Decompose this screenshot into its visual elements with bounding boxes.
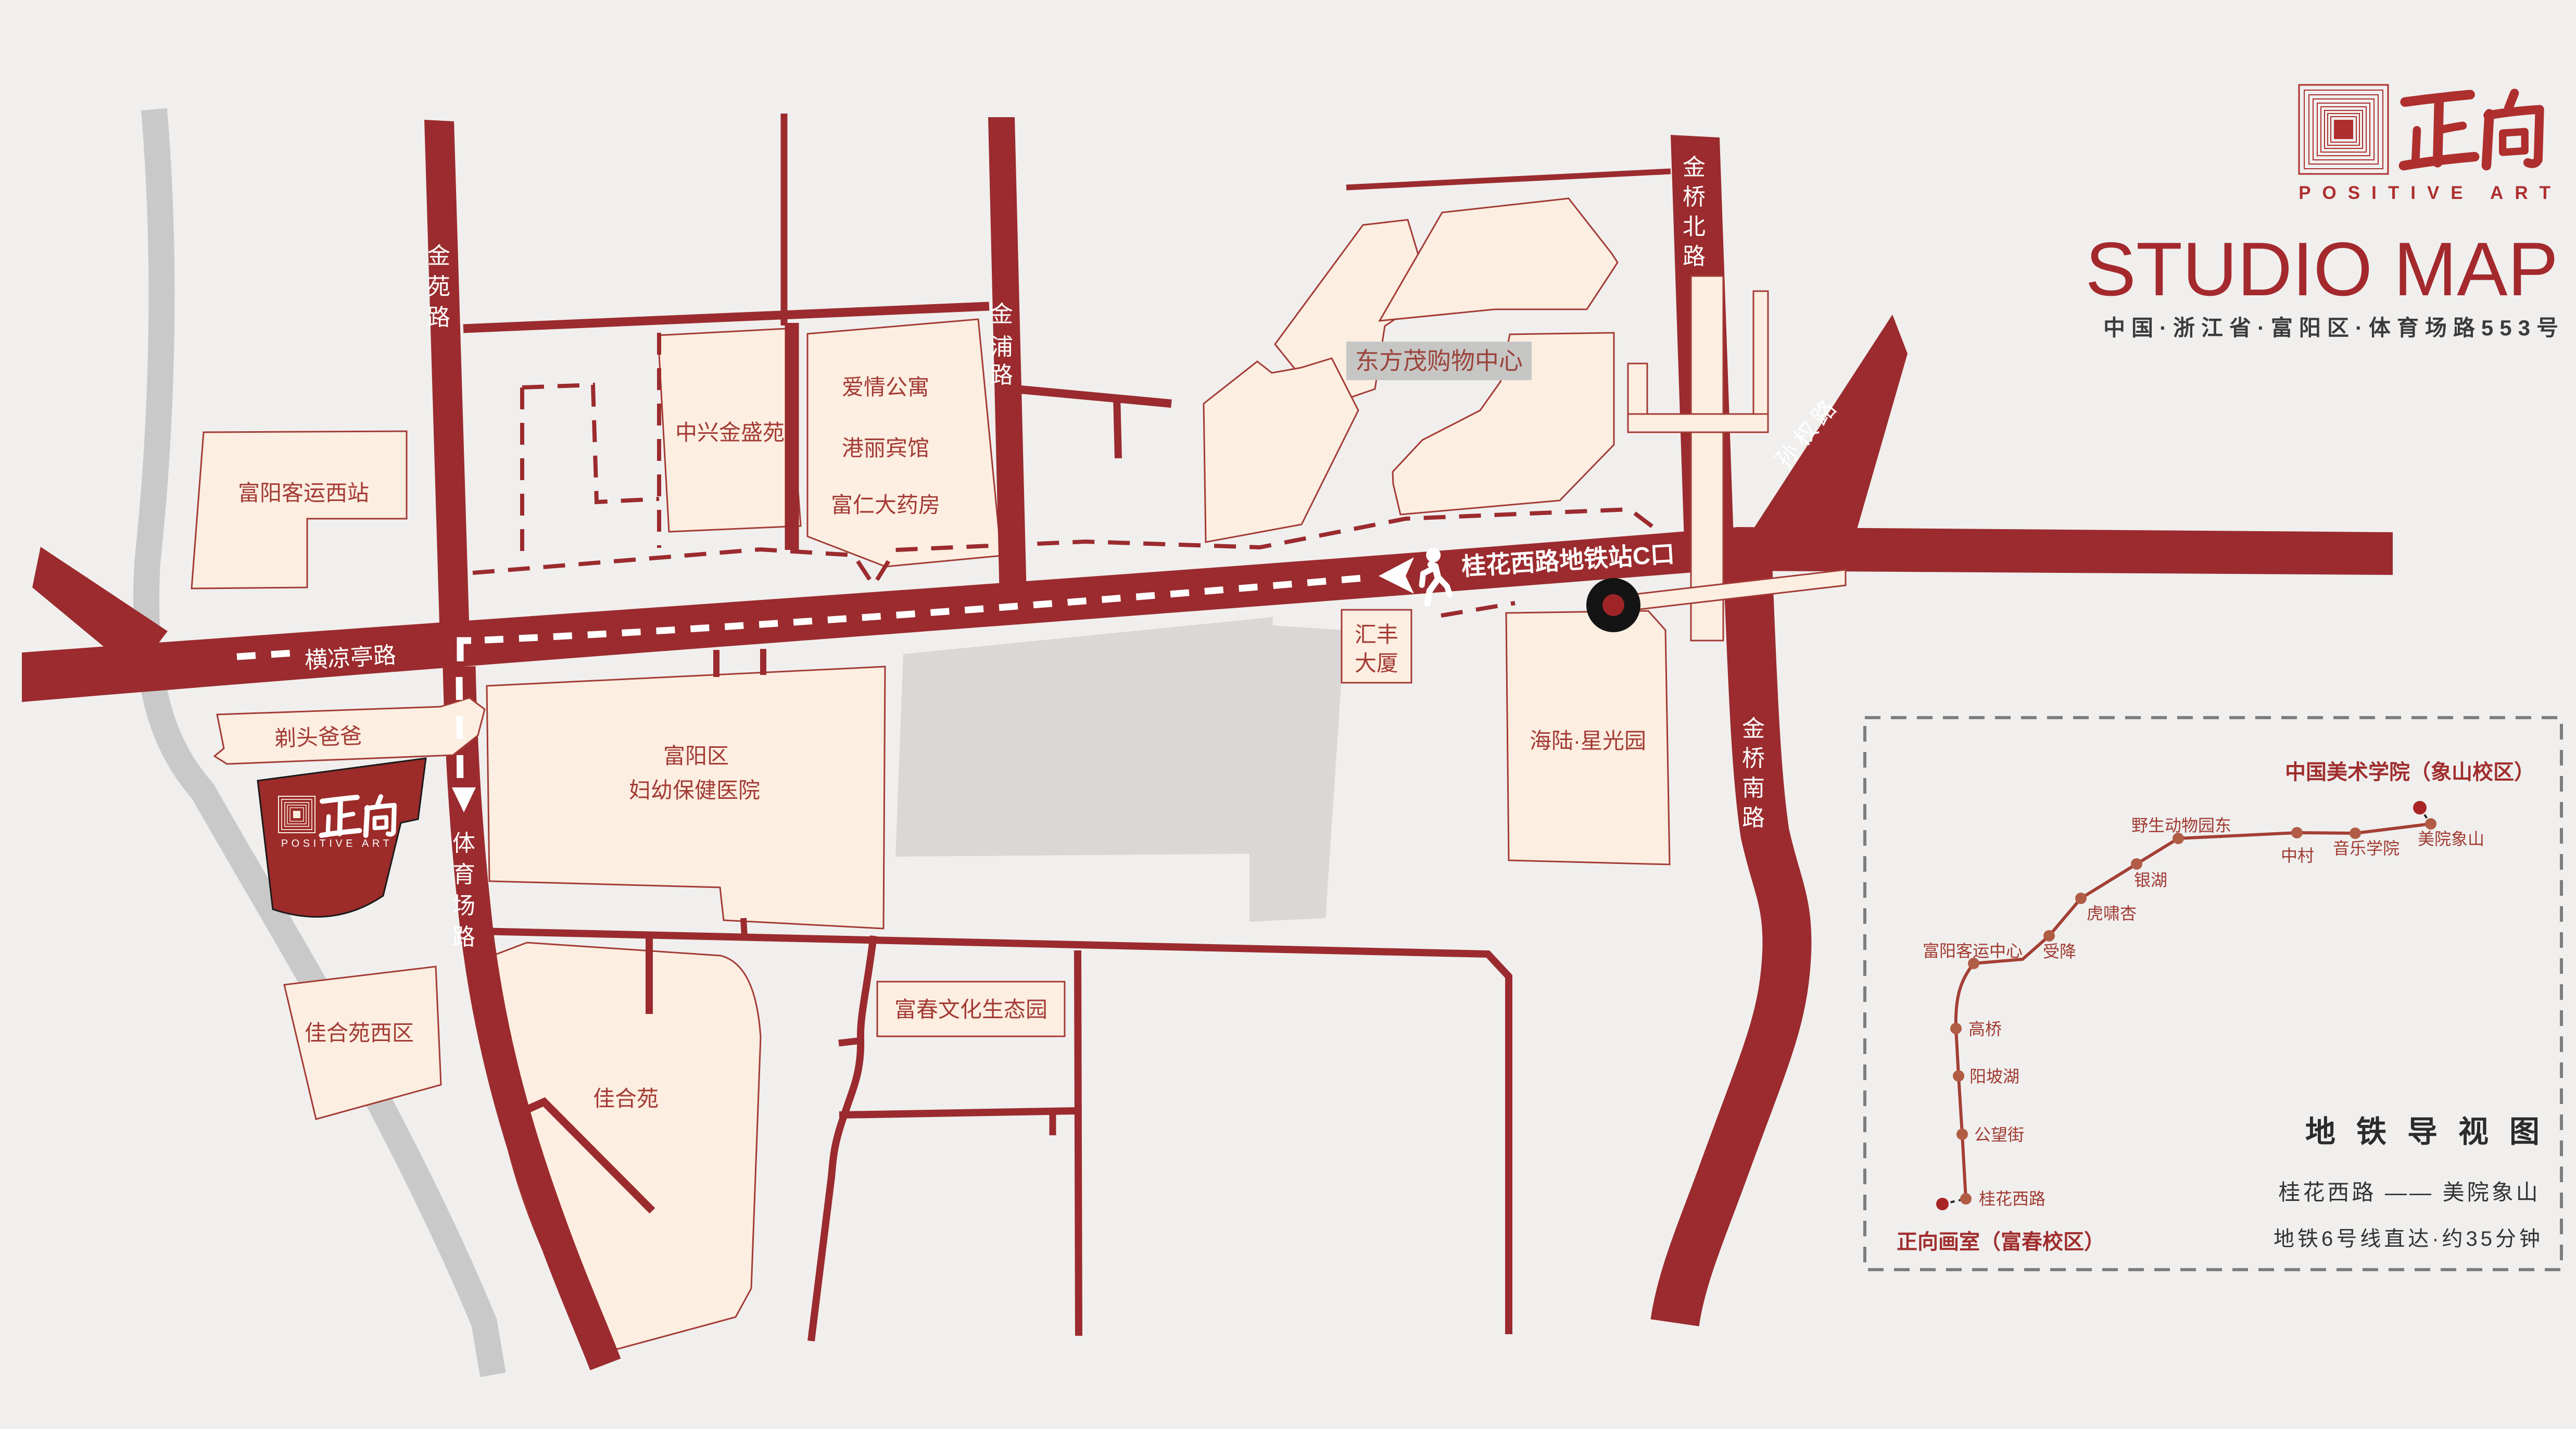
svg-text:POSITIVE ART: POSITIVE ART	[281, 838, 393, 849]
svg-text:桥: 桥	[1742, 746, 1765, 771]
svg-text:受降: 受降	[2043, 942, 2076, 961]
svg-text:桥: 桥	[1683, 184, 1706, 210]
svg-text:桂花西路 —— 美院象山: 桂花西路 —— 美院象山	[2278, 1180, 2540, 1205]
svg-text:东方茂购物中心: 东方茂购物中心	[1355, 347, 1523, 374]
svg-text:金: 金	[427, 243, 450, 269]
svg-text:佳合苑西区: 佳合苑西区	[305, 1021, 414, 1045]
svg-text:北: 北	[1683, 214, 1706, 240]
svg-text:地铁6号线直达·约35分钟: 地铁6号线直达·约35分钟	[2274, 1227, 2543, 1250]
svg-text:苑: 苑	[427, 274, 450, 299]
svg-text:富春文化生态园: 富春文化生态园	[894, 997, 1047, 1022]
svg-text:育: 育	[452, 862, 475, 887]
svg-text:爱情公寓: 爱情公寓	[842, 375, 929, 399]
svg-text:中国美术学院（象山校区）: 中国美术学院（象山校区）	[2285, 761, 2535, 784]
svg-text:金: 金	[1742, 716, 1765, 742]
svg-text:富阳客运西站: 富阳客运西站	[238, 481, 369, 505]
svg-text:大厦: 大厦	[1355, 651, 1398, 675]
svg-text:公望街: 公望街	[1974, 1125, 2024, 1144]
svg-text:音乐学院: 音乐学院	[2333, 839, 2400, 858]
svg-text:路: 路	[990, 362, 1013, 388]
svg-text:富阳区: 富阳区	[663, 744, 729, 768]
svg-text:地铁导视图: 地铁导视图	[2305, 1115, 2560, 1149]
svg-text:体: 体	[452, 831, 475, 856]
svg-text:中兴金盛苑: 中兴金盛苑	[675, 420, 785, 445]
svg-text:桂花西路: 桂花西路	[1979, 1189, 2045, 1208]
svg-text:中村: 中村	[2281, 846, 2314, 865]
svg-text:场: 场	[452, 893, 475, 919]
svg-text:银湖: 银湖	[2134, 871, 2167, 889]
svg-text:高桥: 高桥	[1968, 1020, 2002, 1038]
svg-text:南: 南	[1742, 775, 1765, 801]
svg-text:海陆·星光园: 海陆·星光园	[1530, 729, 1646, 753]
svg-text:正向画室（富春校区）: 正向画室（富春校区）	[1897, 1231, 2105, 1253]
svg-text:港丽宾馆: 港丽宾馆	[842, 436, 929, 460]
svg-text:路: 路	[452, 924, 475, 950]
svg-text:金: 金	[1683, 155, 1706, 180]
svg-text:美院象山: 美院象山	[2418, 830, 2484, 848]
svg-text:野生动物园东: 野生动物园东	[2131, 816, 2231, 835]
svg-text:中国·浙江省·富阳区·体育场路553号: 中国·浙江省·富阳区·体育场路553号	[2103, 316, 2565, 340]
svg-text:富阳客运中心: 富阳客运中心	[1923, 942, 2023, 960]
svg-text:路: 路	[427, 305, 450, 330]
svg-text:STUDIO MAP: STUDIO MAP	[2085, 227, 2558, 311]
svg-text:浦: 浦	[990, 334, 1013, 360]
svg-text:路: 路	[1742, 805, 1765, 831]
svg-text:阳坡湖: 阳坡湖	[1969, 1067, 2019, 1086]
svg-text:剃头爸爸: 剃头爸爸	[274, 723, 362, 751]
svg-text:汇丰: 汇丰	[1355, 622, 1398, 647]
svg-text:虎啸杏: 虎啸杏	[2087, 904, 2137, 923]
svg-text:金: 金	[990, 302, 1013, 327]
svg-text:POSITIVE ART: POSITIVE ART	[2299, 183, 2562, 203]
svg-text:佳合苑: 佳合苑	[593, 1086, 659, 1111]
svg-text:妇幼保健医院: 妇幼保健医院	[629, 778, 760, 803]
svg-text:富仁大药房: 富仁大药房	[831, 493, 940, 517]
svg-text:路: 路	[1683, 244, 1706, 269]
